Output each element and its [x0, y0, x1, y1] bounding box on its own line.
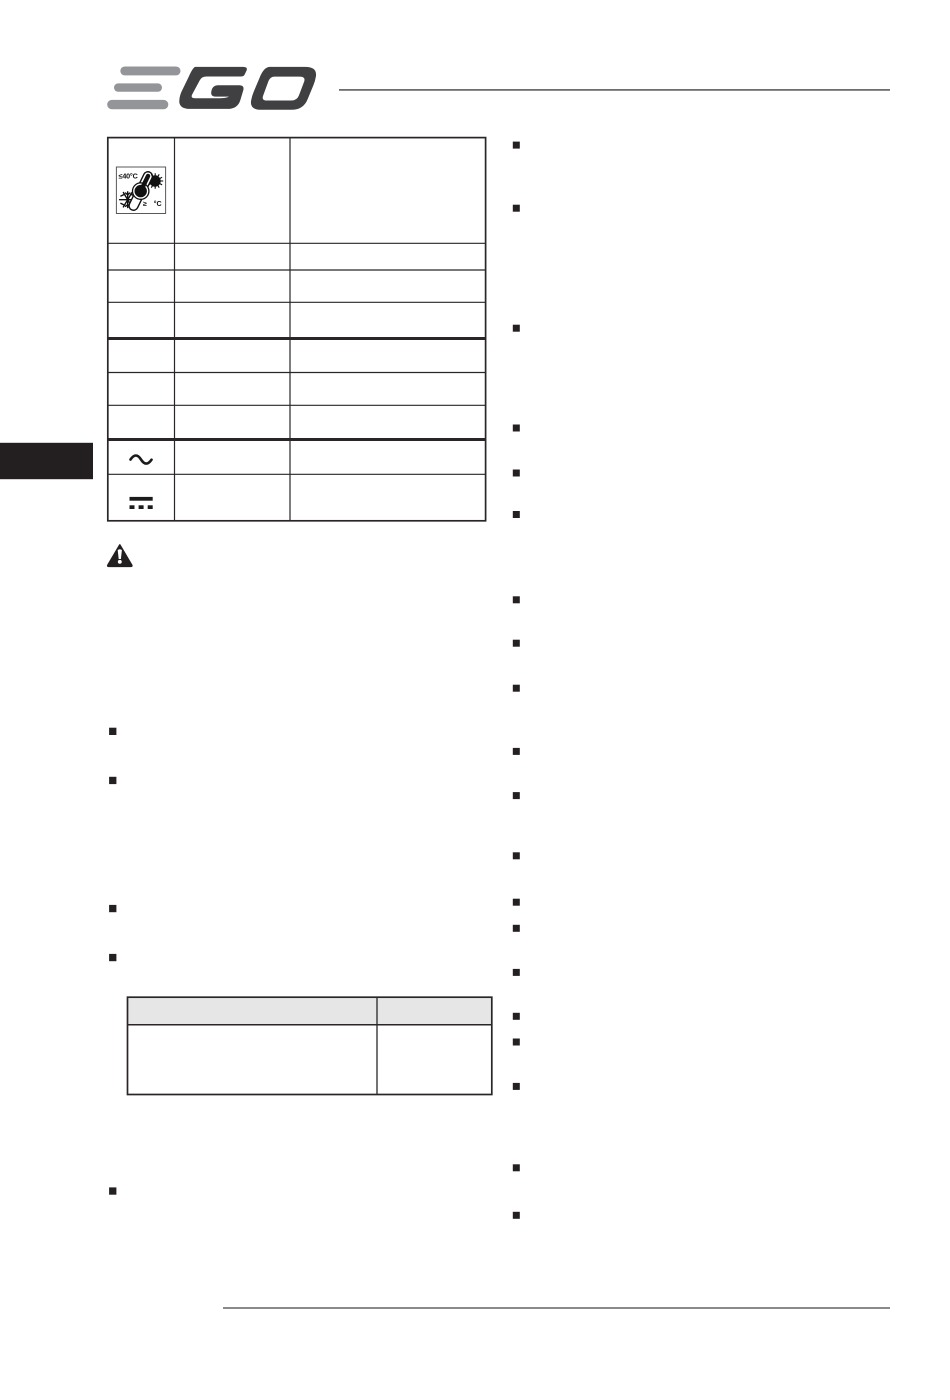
svg-text:≤40°C: ≤40°C	[119, 171, 138, 180]
svg-text:°C: °C	[154, 199, 162, 208]
svg-text:≥: ≥	[143, 201, 147, 208]
